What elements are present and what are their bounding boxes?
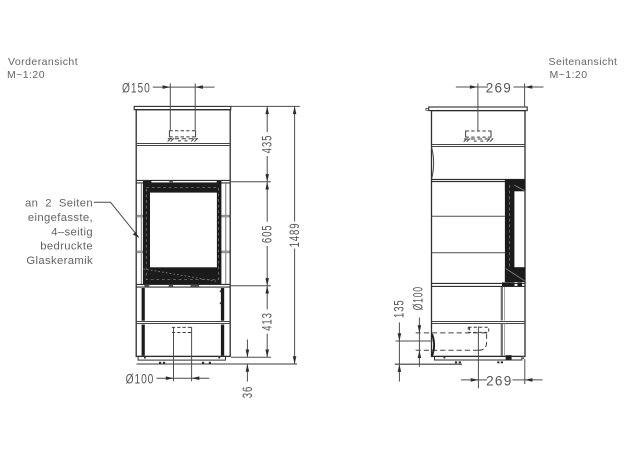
svg-text:Glaskeramik: Glaskeramik (26, 255, 93, 267)
svg-text:605: 605 (259, 224, 275, 243)
svg-text:435: 435 (259, 135, 275, 154)
svg-text:Ø100: Ø100 (412, 286, 426, 310)
svg-text:Vorderansicht: Vorderansicht (8, 56, 78, 68)
svg-text:135: 135 (391, 299, 407, 318)
svg-text:269: 269 (486, 80, 512, 95)
svg-text:36: 36 (239, 386, 255, 398)
svg-text:eingefasste,: eingefasste, (28, 212, 93, 224)
svg-text:Seitenansicht: Seitenansicht (549, 56, 618, 68)
svg-text:Ø100: Ø100 (126, 371, 155, 387)
svg-text:an 2 Seiten: an 2 Seiten (25, 198, 93, 210)
svg-text:1489: 1489 (286, 223, 302, 248)
svg-text:4–seitig: 4–seitig (51, 226, 93, 238)
svg-text:M~1:20: M~1:20 (7, 69, 45, 81)
svg-text:bedruckte: bedruckte (40, 241, 93, 253)
svg-text:269: 269 (486, 373, 512, 388)
svg-text:Ø150: Ø150 (122, 80, 151, 96)
svg-text:M~1:20: M~1:20 (550, 69, 588, 81)
svg-text:413: 413 (259, 312, 275, 331)
